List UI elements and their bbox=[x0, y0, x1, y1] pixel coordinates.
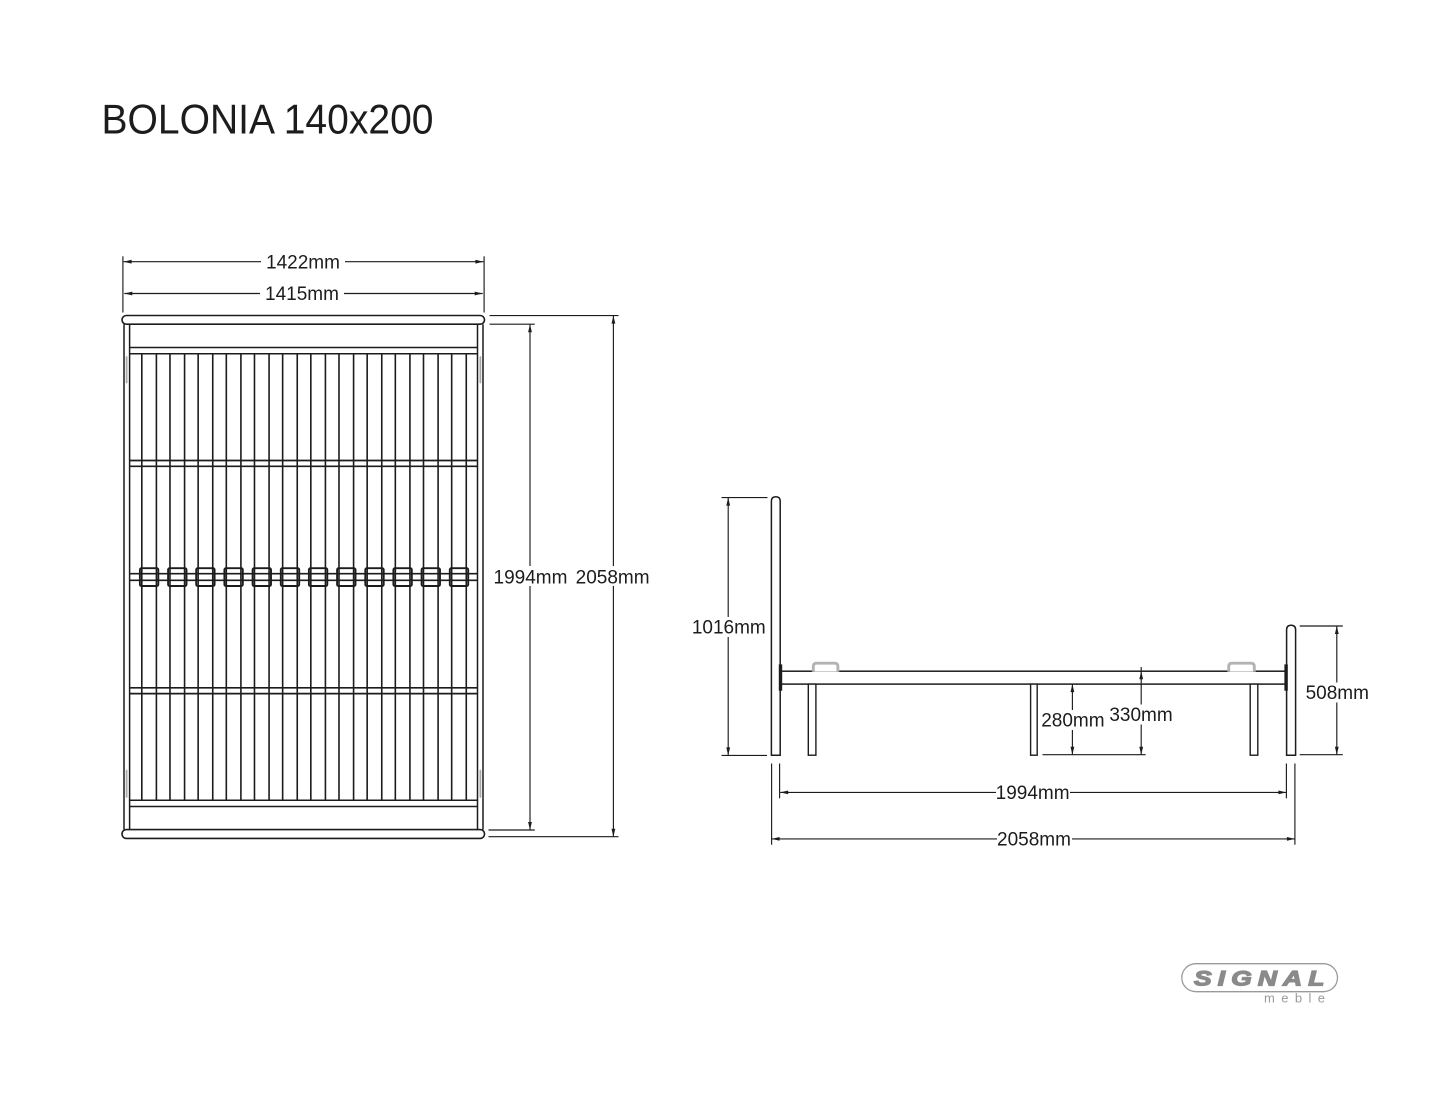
svg-text:508mm: 508mm bbox=[1306, 683, 1369, 704]
svg-text:BOLONIA 140x200: BOLONIA 140x200 bbox=[102, 95, 434, 142]
svg-text:280mm: 280mm bbox=[1041, 711, 1104, 732]
svg-text:2058mm: 2058mm bbox=[997, 830, 1071, 851]
svg-text:1422mm: 1422mm bbox=[266, 252, 340, 273]
svg-text:1415mm: 1415mm bbox=[265, 284, 339, 305]
svg-text:1016mm: 1016mm bbox=[692, 617, 766, 638]
svg-text:330mm: 330mm bbox=[1109, 705, 1172, 726]
svg-text:1994mm: 1994mm bbox=[494, 568, 568, 589]
svg-text:2058mm: 2058mm bbox=[576, 568, 650, 589]
svg-text:1994mm: 1994mm bbox=[996, 783, 1070, 804]
svg-text:meble: meble bbox=[1264, 991, 1331, 1006]
svg-text:SIGNAL: SIGNAL bbox=[1194, 966, 1331, 990]
